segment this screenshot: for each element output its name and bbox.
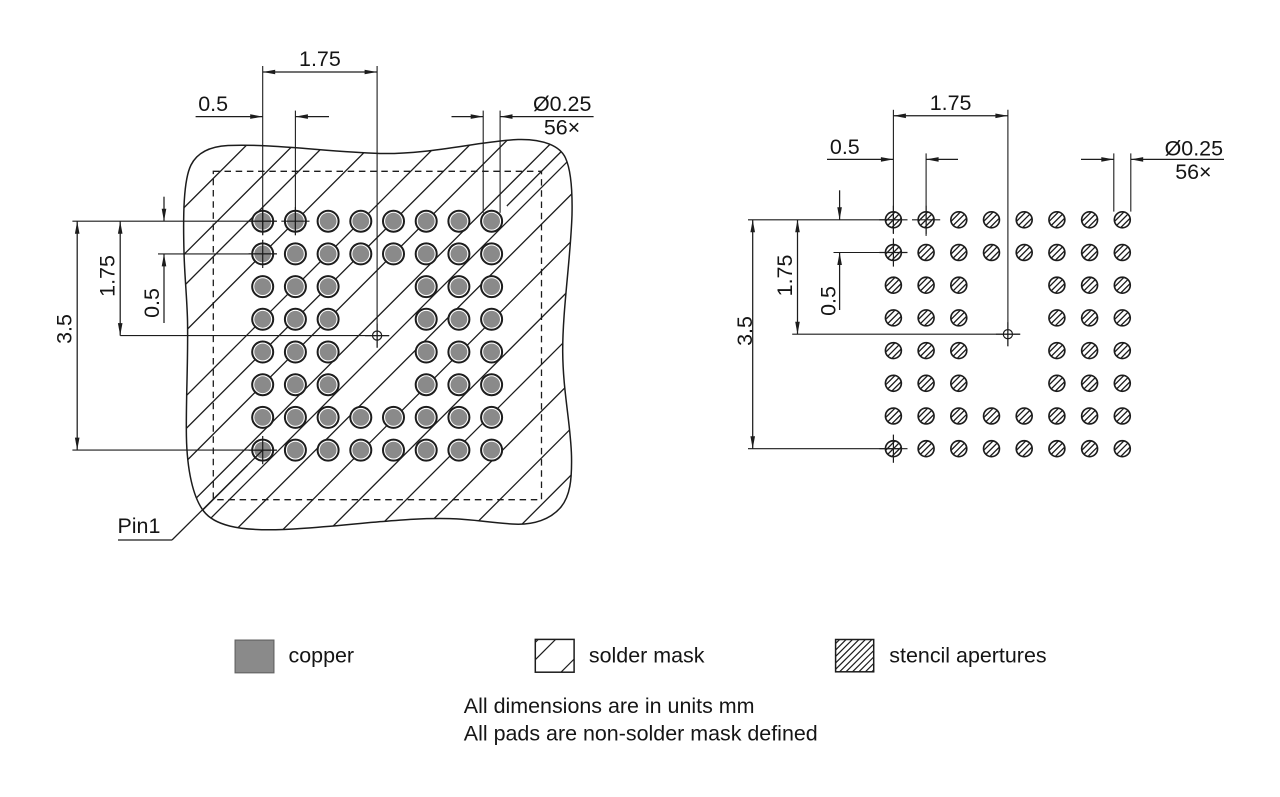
svg-text:stencil apertures: stencil apertures (889, 644, 1046, 668)
svg-text:1.75: 1.75 (299, 47, 341, 71)
svg-text:Ø0.25: Ø0.25 (1165, 136, 1223, 160)
svg-text:0.5: 0.5 (140, 288, 164, 318)
svg-text:solder mask: solder mask (589, 644, 705, 668)
svg-text:1.75: 1.75 (773, 255, 797, 297)
svg-text:copper: copper (289, 644, 355, 668)
svg-text:Pin1: Pin1 (118, 514, 161, 538)
svg-text:3.5: 3.5 (733, 316, 757, 346)
svg-text:All dimensions are in units mm: All dimensions are in units mm (464, 694, 755, 718)
svg-text:All pads are non-solder mask d: All pads are non-solder mask defined (464, 721, 818, 745)
svg-text:0.5: 0.5 (198, 92, 228, 116)
svg-text:0.5: 0.5 (817, 286, 841, 316)
svg-text:56×: 56× (1175, 160, 1211, 184)
svg-text:1.75: 1.75 (96, 255, 120, 297)
svg-text:1.75: 1.75 (930, 91, 972, 115)
svg-text:56×: 56× (544, 116, 580, 140)
svg-text:Ø0.25: Ø0.25 (533, 92, 591, 116)
svg-text:0.5: 0.5 (830, 135, 860, 159)
svg-text:3.5: 3.5 (53, 314, 77, 344)
